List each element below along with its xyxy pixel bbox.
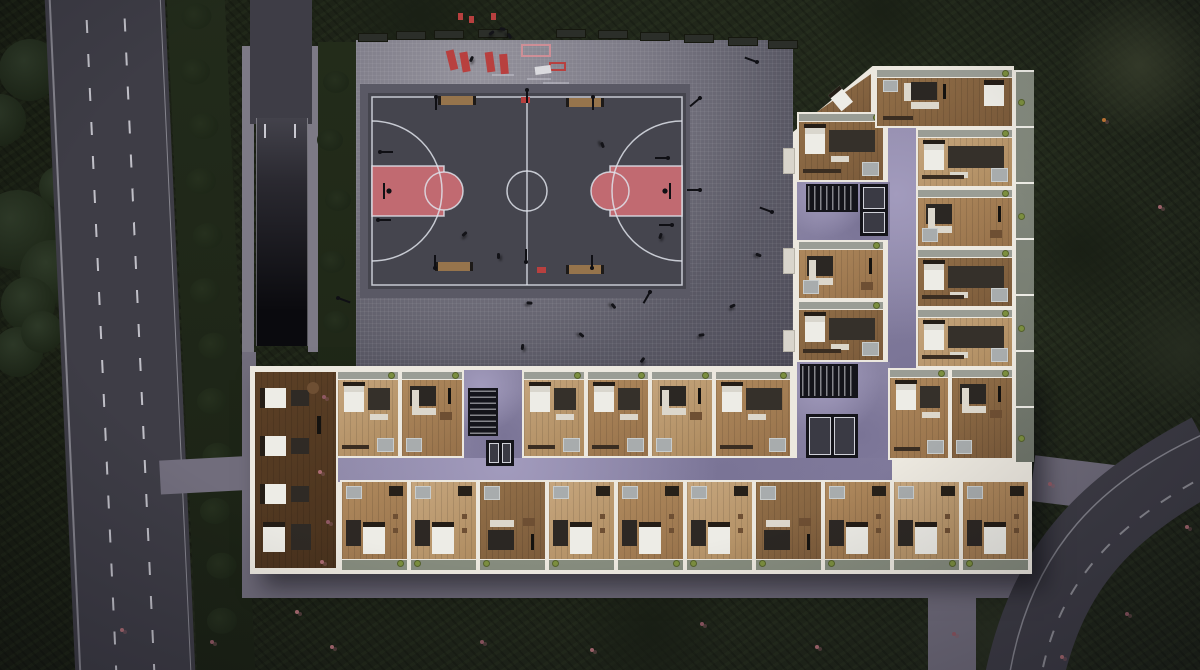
flower-cluster [952, 632, 956, 636]
kitchen-counter [922, 355, 964, 359]
apartment-unit-b1 [340, 480, 409, 572]
bathroom [656, 438, 672, 452]
bathroom [622, 486, 638, 499]
rug [829, 520, 844, 546]
rug [346, 520, 361, 546]
tv-unit [943, 84, 946, 99]
lamp-arm [591, 255, 593, 267]
bathroom [862, 342, 879, 356]
side-table [1014, 528, 1019, 533]
kitchen-counter [720, 445, 753, 449]
rug [967, 520, 982, 546]
lamp-post [378, 150, 382, 154]
terrace-plant [1019, 214, 1024, 219]
plant [1003, 371, 1008, 376]
side-table [462, 528, 467, 533]
fitness-monkey-bars [521, 44, 551, 57]
bed [530, 386, 550, 412]
corridor [338, 458, 892, 482]
wardrobe [941, 486, 955, 496]
bed [594, 386, 614, 412]
bathroom [898, 486, 914, 499]
balcony [825, 559, 890, 570]
lamp-arm [379, 219, 391, 221]
wardrobe [665, 486, 679, 496]
apartment-unit-b3 [478, 480, 547, 572]
apartment-unit-b6 [685, 480, 754, 572]
wardrobe [1010, 486, 1024, 496]
rug [488, 530, 514, 550]
apartment-unit-t6 [714, 370, 792, 458]
bathroom [553, 486, 569, 499]
hedge-bush [206, 552, 237, 579]
side-table [669, 514, 674, 519]
park-bench [640, 32, 670, 41]
hedge-bush [198, 332, 229, 359]
vegetation-patch [1065, 0, 1200, 140]
park-bench [358, 33, 388, 42]
kitchen-counter [894, 447, 920, 451]
apartment-unit-e1 [916, 128, 1014, 188]
lamp-post [591, 95, 595, 99]
bed [805, 128, 825, 154]
fitness-equipment-bit [458, 13, 463, 20]
wardrobe [389, 486, 403, 496]
entry-porch [783, 330, 795, 352]
plant [1003, 71, 1008, 76]
hedge-bush [185, 168, 216, 195]
fitness-floor-bar [543, 82, 569, 84]
lamp-post [698, 188, 702, 192]
bed [344, 386, 364, 412]
flower-cluster [322, 395, 326, 399]
court-bench [566, 98, 604, 107]
flower-cluster [1125, 612, 1129, 616]
plant [389, 373, 394, 378]
sofa [662, 408, 686, 415]
rug [622, 520, 637, 546]
tv-unit [998, 386, 1001, 402]
apartment-unit-b5 [616, 480, 685, 572]
tree-canopy [0, 94, 26, 146]
tv-unit [998, 206, 1001, 222]
sofa [911, 102, 939, 109]
bathroom [415, 486, 431, 499]
hedge-bush [189, 278, 220, 305]
balcony [716, 372, 790, 380]
park-bench [396, 31, 426, 40]
side-table [738, 514, 743, 519]
bathroom [956, 440, 972, 454]
kitchen-counter [922, 175, 964, 179]
rug [291, 524, 311, 550]
apartment-unit-b8 [823, 480, 892, 572]
park-bench [434, 30, 464, 39]
balcony [549, 559, 614, 570]
flower-cluster [330, 645, 334, 649]
balcony [918, 250, 1012, 258]
kitchen-counter [592, 445, 619, 449]
plant [1003, 131, 1008, 136]
wardrobe [596, 486, 610, 496]
bed [260, 388, 286, 408]
bathroom [967, 486, 983, 499]
apartment-unit-b2 [409, 480, 478, 572]
flower-cluster [1102, 118, 1106, 122]
bed [263, 522, 285, 552]
plaza-walkway [159, 455, 259, 494]
bed [846, 522, 868, 554]
kitchen-counter [803, 169, 841, 173]
strip-bush [323, 71, 349, 93]
bathroom [769, 438, 786, 452]
flower-cluster [700, 622, 704, 626]
sofa [412, 408, 436, 415]
hedge-bush [196, 387, 227, 414]
dining-table [523, 518, 535, 526]
bed [708, 522, 730, 554]
balcony [799, 302, 883, 310]
wardrobe [458, 486, 472, 496]
person [526, 301, 532, 304]
apartment-unit-e3 [916, 248, 1014, 308]
strip-bush [319, 251, 345, 273]
strip-bush [323, 311, 349, 333]
sofa [370, 414, 388, 420]
tv-unit [698, 388, 701, 404]
flower-cluster [1060, 655, 1064, 659]
terrace-plant [1019, 436, 1024, 441]
plant [484, 561, 489, 566]
stairwell [468, 388, 498, 436]
flower-cluster [480, 640, 484, 644]
flower-cluster [815, 645, 819, 649]
elevator-car [489, 443, 499, 463]
bed [805, 316, 825, 342]
terrace-plant [1019, 100, 1024, 105]
sofa [928, 208, 935, 226]
rug [415, 520, 430, 546]
plaza-walkway [242, 572, 1038, 598]
rug [618, 388, 640, 410]
elevator-shaft [860, 184, 888, 236]
plant [1003, 251, 1008, 256]
elevator-car [834, 417, 856, 455]
bed [915, 522, 937, 554]
rug [291, 438, 309, 454]
court-bench [566, 265, 604, 274]
bathroom [862, 162, 879, 176]
lamp-arm [659, 225, 671, 227]
apartment-unit-t4 [586, 370, 650, 458]
flower-cluster [320, 560, 324, 564]
side-table [945, 514, 950, 519]
sofa [831, 156, 849, 162]
person [497, 253, 500, 259]
rug [764, 530, 790, 550]
bathroom [922, 228, 938, 242]
kitchen-counter [883, 116, 913, 120]
bathroom [991, 288, 1008, 302]
lamp-post [376, 218, 380, 222]
plant [781, 373, 786, 378]
side-table [876, 514, 881, 519]
road-lane-dash-line [122, 0, 156, 670]
elevator-shaft [486, 440, 514, 466]
bed [260, 484, 286, 504]
apartment-unit-w1 [797, 112, 885, 182]
kitchen-counter [803, 349, 841, 353]
lamp-arm [655, 158, 667, 160]
balcony [480, 559, 545, 570]
court-bench [438, 96, 476, 105]
lamp-arm [593, 98, 595, 110]
apartment-unit-t5 [650, 370, 714, 458]
court-bench [435, 262, 473, 271]
sofa [962, 388, 969, 406]
access-lane [250, 0, 312, 124]
bed [570, 522, 592, 554]
lamp-post [666, 156, 670, 160]
apartment-unit-t2 [400, 370, 464, 458]
plant [1003, 191, 1008, 196]
rug [829, 130, 875, 152]
plant [415, 561, 420, 566]
apartment-unit-b9 [892, 480, 961, 572]
lamp-post [590, 266, 594, 270]
flower-cluster [1185, 525, 1189, 529]
road-lane-dash-line [84, 0, 118, 670]
tv-unit [531, 534, 534, 550]
lamp-arm [381, 151, 393, 153]
sofa [904, 83, 911, 101]
dining-table [690, 412, 702, 420]
bathroom [829, 486, 845, 499]
strip-bush [317, 129, 343, 151]
sofa [490, 520, 514, 527]
flower-cluster [295, 610, 299, 614]
plant [674, 561, 679, 566]
bathroom [760, 486, 776, 500]
bathroom [406, 438, 422, 452]
stairwell [806, 184, 858, 212]
rug [948, 146, 1004, 168]
fitness-equipment-bit [469, 16, 474, 23]
flower-cluster [1158, 205, 1162, 209]
elevator-car [502, 443, 512, 463]
hedge-bush [206, 607, 237, 634]
side-table [462, 514, 467, 519]
rug [920, 386, 940, 408]
park-bench [556, 29, 586, 38]
rug [911, 82, 937, 100]
lamp-post [525, 88, 529, 92]
rug [368, 388, 390, 410]
balcony [799, 114, 883, 122]
lamp-arm [525, 249, 527, 261]
sofa [412, 390, 419, 408]
balcony [799, 242, 883, 250]
bed [639, 522, 661, 554]
plant [553, 561, 558, 566]
lamp-arm [687, 190, 699, 192]
wardrobe [872, 486, 886, 496]
lamp-arm [436, 98, 438, 110]
balcony [918, 310, 1012, 318]
side-table [669, 528, 674, 533]
park-bench [684, 34, 714, 43]
bed [363, 522, 385, 554]
rug [554, 388, 576, 410]
plant [950, 561, 955, 566]
plant [967, 561, 972, 566]
kitchen-counter [342, 445, 369, 449]
apartment-unit-c1 [888, 368, 950, 460]
entry-porch [783, 148, 795, 174]
bed [984, 80, 1004, 106]
rug [948, 326, 1004, 348]
side-table [738, 528, 743, 533]
rug [948, 266, 1004, 288]
bathroom [691, 486, 707, 499]
kitchen-counter [922, 295, 964, 299]
flower-cluster [590, 648, 594, 652]
bed [924, 264, 944, 290]
bed [432, 522, 454, 554]
balcony [963, 559, 1028, 570]
apartment-unit-t1 [336, 370, 400, 458]
plant [453, 373, 458, 378]
side-table [876, 528, 881, 533]
fitness-floor-bar [492, 74, 514, 76]
tv-unit [807, 534, 810, 550]
bed [260, 436, 286, 456]
bathroom [991, 348, 1008, 362]
rug [691, 520, 706, 546]
bathroom [377, 438, 394, 452]
tv-unit [448, 388, 451, 404]
stairwell [800, 364, 858, 398]
flower-cluster [1048, 482, 1052, 486]
flower-cluster [326, 520, 330, 524]
rug [898, 520, 913, 546]
balcony [756, 559, 821, 570]
terrace-plant [1019, 326, 1024, 331]
strip-bush [325, 189, 351, 211]
apartment-unit-w2 [797, 240, 885, 300]
lamp-post [670, 223, 674, 227]
dining-table [861, 282, 873, 290]
elevator-car [809, 417, 831, 455]
fitness-equipment-bit [491, 13, 496, 20]
plant [1003, 311, 1008, 316]
bathroom [484, 486, 500, 500]
entry-porch [783, 248, 795, 274]
plant [939, 371, 944, 376]
apartment-unit-w3 [797, 300, 885, 362]
bathroom [563, 438, 580, 452]
lamp-arm [434, 255, 436, 267]
wardrobe [734, 486, 748, 496]
bathroom [927, 440, 944, 454]
flower-cluster [210, 640, 214, 644]
hedge-bush [179, 58, 210, 85]
side-table [1014, 514, 1019, 519]
rug [291, 486, 309, 502]
ramp-dash-marking [264, 124, 266, 138]
lamp-post [434, 95, 438, 99]
apartment-unit-e2 [916, 188, 1014, 248]
apartment-unit-suite [253, 370, 338, 570]
plant [874, 243, 879, 248]
bed [924, 324, 944, 350]
tv-unit [317, 416, 321, 434]
bed [984, 522, 1006, 554]
bathroom [991, 168, 1008, 182]
dining-table [799, 518, 811, 526]
dining-table [307, 382, 319, 394]
lamp-post [524, 260, 528, 264]
plant [703, 373, 708, 378]
sofa [766, 520, 790, 527]
tv-unit [869, 258, 872, 274]
fitness-bench-red [499, 54, 509, 75]
bed [722, 386, 742, 412]
apartment-unit-t3 [522, 370, 586, 458]
side-table [393, 514, 398, 519]
bed [924, 144, 944, 170]
flower-cluster [318, 470, 322, 474]
balcony [918, 190, 1012, 198]
court-equipment-red [537, 267, 546, 273]
balcony [877, 70, 1012, 78]
dining-table [990, 410, 1002, 418]
tree-canopy [21, 311, 63, 353]
sofa [922, 412, 940, 418]
rug [746, 388, 782, 410]
apartment-unit-e0 [875, 68, 1014, 128]
apartment-unit-b10 [961, 480, 1030, 572]
fitness-floor-bar [527, 78, 551, 80]
sofa [962, 406, 986, 413]
person [507, 33, 513, 40]
apartment-unit-e4 [916, 308, 1014, 368]
plant [760, 561, 765, 566]
plant [829, 561, 834, 566]
bathroom [803, 280, 819, 294]
bathroom [346, 486, 362, 499]
flower-cluster [120, 628, 124, 632]
sofa [809, 260, 816, 278]
kitchen-counter [528, 445, 555, 449]
apartment-unit-b4 [547, 480, 616, 572]
dining-table [990, 230, 1002, 238]
hedge-bush [199, 497, 230, 524]
bathroom [627, 438, 644, 452]
terrace-column [1014, 70, 1034, 462]
rug [553, 520, 568, 546]
sofa [556, 414, 574, 420]
park-bench [728, 37, 758, 46]
rug [829, 318, 875, 340]
sofa [620, 414, 638, 420]
site-plan-render [0, 0, 1200, 670]
apartment-unit-c2 [950, 368, 1014, 460]
plant [639, 373, 644, 378]
plant [575, 373, 580, 378]
vegetation-patch [815, 0, 945, 77]
plant [874, 303, 879, 308]
